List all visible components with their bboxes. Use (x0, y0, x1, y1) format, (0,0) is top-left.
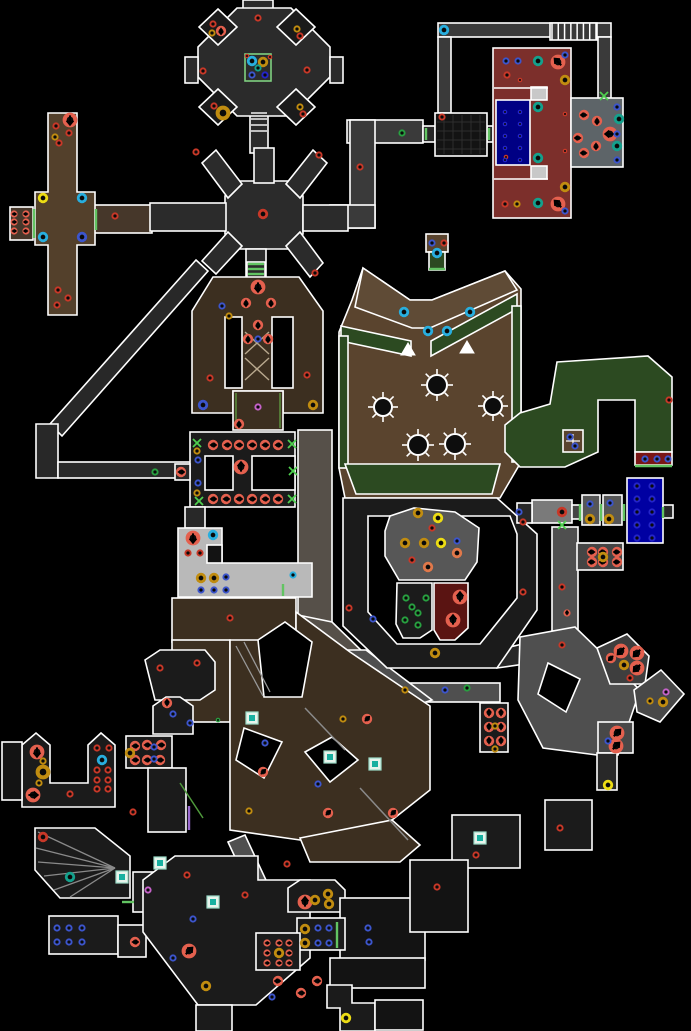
gold-item-marker (401, 686, 408, 693)
marker-part (608, 501, 611, 504)
marker-part (217, 719, 219, 721)
marker-part (536, 156, 541, 161)
blue-item-marker (218, 302, 225, 309)
gold-item-marker (619, 660, 629, 670)
cyan-item-marker (399, 307, 409, 317)
monster-marker (63, 113, 78, 128)
marker-part (171, 956, 174, 959)
blue-item-marker (222, 586, 229, 593)
monster-marker (30, 745, 45, 760)
monster-marker (612, 557, 622, 567)
marker-part (664, 690, 667, 693)
blue-item-marker (65, 924, 72, 931)
monster-marker (285, 939, 292, 946)
marker-part (316, 941, 319, 944)
blue-item-marker (77, 232, 87, 242)
marker-part (67, 940, 70, 943)
blue-item-marker (248, 71, 255, 78)
monster-marker (176, 467, 186, 477)
marker-part (655, 457, 658, 460)
marker-part (635, 484, 638, 487)
monster-marker (312, 976, 322, 986)
red-item-marker (556, 824, 563, 831)
marker-part (493, 724, 496, 727)
marker-part (67, 926, 70, 929)
marker-part (435, 885, 438, 888)
teal-item-marker (254, 64, 261, 71)
blue-item-marker (261, 739, 268, 746)
marker-part (416, 511, 421, 516)
blue-item-marker (369, 615, 376, 622)
monster-marker (587, 547, 597, 557)
marker-part (212, 104, 215, 107)
blue-item-marker (189, 915, 196, 922)
yellow-item-marker (433, 513, 443, 523)
orange-item-marker (423, 562, 433, 572)
marker-part (558, 826, 561, 829)
pillar (374, 398, 392, 416)
red-item-marker (206, 374, 213, 381)
marker-part (196, 481, 199, 484)
gold-item-marker (308, 400, 318, 410)
monster-marker (266, 298, 276, 308)
gold-item-marker (598, 552, 608, 562)
marker-part (426, 565, 431, 570)
top-corridor-right-drop (598, 37, 611, 99)
marker-part (617, 117, 622, 122)
marker-part (41, 196, 46, 201)
marker-part (650, 536, 653, 539)
marker-part (515, 202, 518, 205)
gold-item-marker (658, 697, 668, 707)
red-item-marker (345, 604, 352, 611)
monster-marker (263, 334, 273, 344)
marker-part (607, 517, 612, 522)
red-item-marker (193, 659, 200, 666)
blue-item-marker (325, 939, 332, 946)
monster-marker (496, 736, 506, 746)
marker-part (606, 739, 609, 742)
yellow-item-marker (603, 780, 613, 790)
blue-item-marker (197, 586, 204, 593)
marker-part (442, 241, 445, 244)
red-item-marker (54, 286, 61, 293)
marker-part (563, 209, 566, 212)
blue-item-marker (571, 442, 578, 449)
pillar (427, 375, 447, 395)
marker-part (666, 457, 669, 460)
red-item-marker (254, 14, 261, 21)
marker-part (107, 746, 110, 749)
marker-part (53, 135, 56, 138)
marker-part (504, 123, 506, 125)
marker-part (426, 329, 431, 334)
lift-bottom (531, 166, 547, 179)
marker-part (455, 539, 458, 542)
monster-marker (241, 298, 251, 308)
monster-marker (273, 440, 283, 450)
marker-part (560, 585, 563, 588)
navy-item-marker (633, 508, 640, 515)
navy-item-marker (518, 110, 523, 115)
navy-item-marker (518, 122, 523, 127)
blue-item-marker (514, 57, 521, 64)
blue-item-marker (314, 939, 321, 946)
marker-part (194, 150, 197, 153)
red-item-marker (199, 67, 206, 74)
green-item-marker (463, 684, 470, 691)
cross-room (35, 113, 95, 315)
marker-part (505, 73, 508, 76)
monster-marker (612, 547, 622, 557)
marker-part (563, 53, 566, 56)
blue-item-marker (566, 433, 573, 440)
cyan-item-marker (38, 232, 48, 242)
purple-item-marker (144, 886, 151, 893)
monster-marker (275, 959, 282, 966)
marker-part (106, 768, 109, 771)
cyan-item-marker (442, 326, 452, 336)
monster-marker (234, 460, 249, 475)
monster-marker (591, 141, 601, 151)
marker-part (402, 310, 407, 315)
gold-item-marker (274, 948, 284, 958)
green-item-marker (398, 129, 405, 136)
green-item-marker (216, 718, 221, 723)
gold-item-marker (225, 312, 232, 319)
blue-dots-room (49, 916, 118, 954)
marker-part (573, 444, 576, 447)
monster-marker (10, 227, 17, 234)
blue-item-marker (169, 710, 176, 717)
marker-part (250, 59, 255, 64)
blue-item-marker (561, 207, 568, 214)
marker-part (313, 271, 316, 274)
gold-item-marker (193, 447, 200, 454)
gold-item-marker (339, 715, 346, 722)
marker-part (435, 251, 440, 256)
marker-part (635, 536, 638, 539)
teleporter-core (210, 899, 216, 905)
green-item-marker (151, 468, 158, 475)
marker-part (400, 131, 403, 134)
navy-item-marker (633, 521, 640, 528)
marker-part (521, 590, 524, 593)
monster-marker (216, 26, 226, 36)
monster-marker (208, 440, 218, 450)
gold-item-marker (193, 489, 200, 496)
red-item-marker (53, 301, 60, 308)
marker-part (519, 123, 521, 125)
red-item-marker (226, 614, 233, 621)
marker-part (243, 893, 246, 896)
marker-part (465, 686, 468, 689)
pillar (445, 434, 465, 454)
blue-item-marker (664, 455, 671, 462)
marker-part (80, 940, 83, 943)
red-item-marker (210, 102, 217, 109)
red-item-marker (104, 776, 111, 783)
star-west-arm (150, 203, 226, 231)
blue-item-marker (169, 954, 176, 961)
monster-marker (275, 939, 282, 946)
monster-marker (253, 320, 263, 330)
marker-part (622, 663, 627, 668)
red-item-marker (519, 518, 526, 525)
red-item-marker (558, 583, 565, 590)
monster-marker (484, 736, 494, 746)
monster-marker (22, 218, 29, 225)
teleporter-core (327, 754, 333, 760)
green-item-marker (414, 621, 421, 628)
blue-item-marker (502, 57, 509, 64)
cyan-item-marker (439, 25, 449, 35)
marker-part (250, 73, 253, 76)
west-horizontal-corridor (58, 462, 190, 478)
red-item-marker (433, 883, 440, 890)
marker-part (588, 502, 591, 505)
marker-part (358, 165, 361, 168)
monster-marker (285, 949, 292, 956)
green-item-marker (414, 609, 421, 616)
doom-automap (0, 0, 691, 1031)
marker-part (650, 510, 653, 513)
navy-item-marker (518, 134, 523, 139)
mid-south-room-3 (545, 800, 592, 850)
marker-part (256, 16, 259, 19)
marker-part (66, 296, 69, 299)
blue-item-marker (364, 924, 371, 931)
marker-part (560, 510, 565, 515)
navy-item-marker (648, 508, 655, 515)
marker-part (80, 196, 85, 201)
navy-item-marker (648, 482, 655, 489)
marker-part (440, 115, 443, 118)
monster-marker (453, 590, 468, 605)
marker-part (185, 873, 188, 876)
marker-part (455, 551, 460, 556)
marker-part (504, 111, 506, 113)
marker-part (504, 159, 506, 161)
blue-item-marker (194, 456, 201, 463)
marker-part (153, 470, 156, 473)
red-item-marker (258, 209, 268, 219)
gold-item-marker (419, 538, 429, 548)
monster-marker (263, 949, 270, 956)
gold-item-marker (296, 103, 303, 110)
monster-marker (592, 116, 602, 126)
blue-item-marker (65, 938, 72, 945)
marker-part (298, 105, 301, 108)
gold-item-marker (430, 648, 440, 658)
marker-part (113, 214, 116, 217)
marker-part (220, 110, 227, 117)
marker-part (424, 596, 427, 599)
green-item-marker (401, 616, 408, 623)
bottom-stub-right (375, 1000, 423, 1030)
marker-part (410, 605, 413, 608)
level-map-canvas (0, 0, 691, 1031)
gold-item-marker (300, 938, 310, 948)
monster-marker (285, 959, 292, 966)
blue-item-marker (150, 755, 157, 762)
marker-part (210, 31, 213, 34)
red-item-marker (558, 641, 565, 648)
marker-part (371, 617, 374, 620)
monster-marker (243, 334, 253, 344)
marker-part (564, 150, 566, 152)
marker-part (430, 526, 433, 529)
marker-part (516, 59, 519, 62)
red-item-marker (299, 110, 306, 117)
red-item-marker (408, 556, 415, 563)
monster-marker (22, 210, 29, 217)
marker-part (316, 782, 319, 785)
red-item-marker (93, 785, 100, 792)
gold-item-marker (208, 29, 215, 36)
star-north-arm (254, 148, 274, 183)
teal-item-marker (65, 872, 75, 882)
marker-part (198, 551, 201, 554)
marker-part (635, 523, 638, 526)
red-item-marker (440, 239, 447, 246)
marker-part (291, 573, 294, 576)
marker-part (220, 304, 223, 307)
marker-part (285, 862, 288, 865)
marker-part (54, 124, 57, 127)
marker-part (403, 688, 406, 691)
monster-marker (22, 227, 29, 234)
courtyard-green-bottom (345, 464, 500, 494)
blue-item-marker (453, 537, 460, 544)
room-spiky-upper (145, 650, 215, 700)
gold-item-marker (196, 573, 206, 583)
marker-part (146, 888, 149, 891)
monster-marker (273, 494, 283, 504)
red-item-marker (111, 212, 118, 219)
green-item-marker (402, 594, 409, 601)
red-item-marker (66, 790, 73, 797)
marker-part (256, 405, 259, 408)
blue-room-stub (663, 505, 673, 518)
gold-item-marker (646, 697, 653, 704)
red-item-marker (105, 744, 112, 751)
red-item-marker (38, 832, 48, 842)
navy-item-marker (503, 110, 508, 115)
marker-part (311, 403, 316, 408)
navy-item-marker (518, 146, 523, 151)
marker-part (100, 758, 105, 763)
red-item-marker (563, 112, 568, 117)
monster-marker (263, 959, 270, 966)
red-item-marker (183, 871, 190, 878)
monster-marker (251, 280, 266, 295)
bottom-right-room-lower (330, 958, 425, 988)
marker-part (269, 56, 271, 58)
monster-marker (162, 698, 172, 708)
red-item-marker (93, 744, 100, 751)
blue-item-marker (78, 924, 85, 931)
blue-item-marker (641, 455, 648, 462)
marker-part (55, 926, 58, 929)
marker-part (305, 68, 308, 71)
red-item-marker (303, 66, 310, 73)
marker-part (201, 403, 206, 408)
marker-part (80, 235, 85, 240)
marker-part (536, 59, 541, 64)
monster-marker (587, 557, 597, 567)
marker-part (568, 435, 571, 438)
red-item-marker (192, 148, 199, 155)
octagon-west-stub (185, 57, 198, 83)
red-item-marker (303, 371, 310, 378)
monster-marker (142, 740, 152, 750)
orange-item-marker (452, 548, 462, 558)
blue-item-marker (586, 500, 593, 507)
red-item-marker (129, 808, 136, 815)
purple-item-marker (662, 688, 669, 695)
red-item-marker (93, 766, 100, 773)
monster-marker (247, 440, 257, 450)
monster-marker (579, 148, 589, 158)
navy-item-marker (633, 534, 640, 541)
teal-item-marker (612, 141, 622, 151)
marker-part (41, 759, 44, 762)
monster-marker (496, 708, 506, 718)
marker-part (313, 898, 318, 903)
gold-item-marker (216, 106, 231, 121)
marker-part (227, 314, 230, 317)
marker-part (503, 202, 506, 205)
marker-part (303, 927, 308, 932)
marker-part (316, 926, 319, 929)
arch-maze-slot-right (272, 317, 293, 388)
marker-part (208, 376, 211, 379)
marker-part (95, 778, 98, 781)
blue-item-marker (515, 508, 522, 515)
marker-part (517, 510, 520, 513)
marker-part (256, 66, 259, 69)
monster-marker (186, 531, 201, 546)
green-item-marker (408, 603, 415, 610)
marker-part (327, 941, 330, 944)
monster-marker (296, 988, 306, 998)
monster-marker (10, 218, 17, 225)
marker-part (635, 510, 638, 513)
marker-part (201, 69, 204, 72)
marker-part (68, 792, 71, 795)
marker-part (661, 700, 666, 705)
cyan-item-marker (247, 56, 257, 66)
red-item-marker (311, 269, 318, 276)
marker-part (263, 73, 266, 76)
marker-part (650, 497, 653, 500)
red-item-marker (184, 549, 191, 556)
elbow-corridor (36, 424, 58, 478)
monster-marker (10, 210, 17, 217)
marker-part (158, 666, 161, 669)
marker-part (403, 541, 408, 546)
teleporter-core (157, 860, 163, 866)
marker-part (436, 516, 441, 521)
red-item-marker (518, 78, 523, 83)
blue-item-marker (222, 573, 229, 580)
marker-part (305, 373, 308, 376)
monster-marker (484, 708, 494, 718)
marker-part (650, 523, 653, 526)
marker-part (563, 78, 568, 83)
marker-part (301, 112, 304, 115)
